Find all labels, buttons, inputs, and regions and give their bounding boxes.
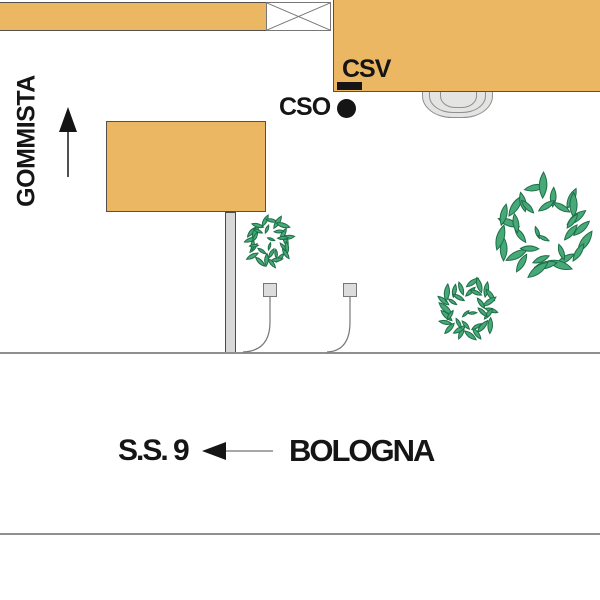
map-canvas: CSV CSO GOMMISTA S.S. 9 BOLOGNA — [0, 0, 600, 600]
left-arrow-head-icon — [202, 442, 226, 460]
up-arrow-head-icon — [59, 107, 77, 132]
post-right-connector — [327, 297, 350, 352]
bush-small — [233, 206, 305, 278]
post-left-connector — [243, 297, 270, 352]
bush-large — [480, 166, 600, 292]
